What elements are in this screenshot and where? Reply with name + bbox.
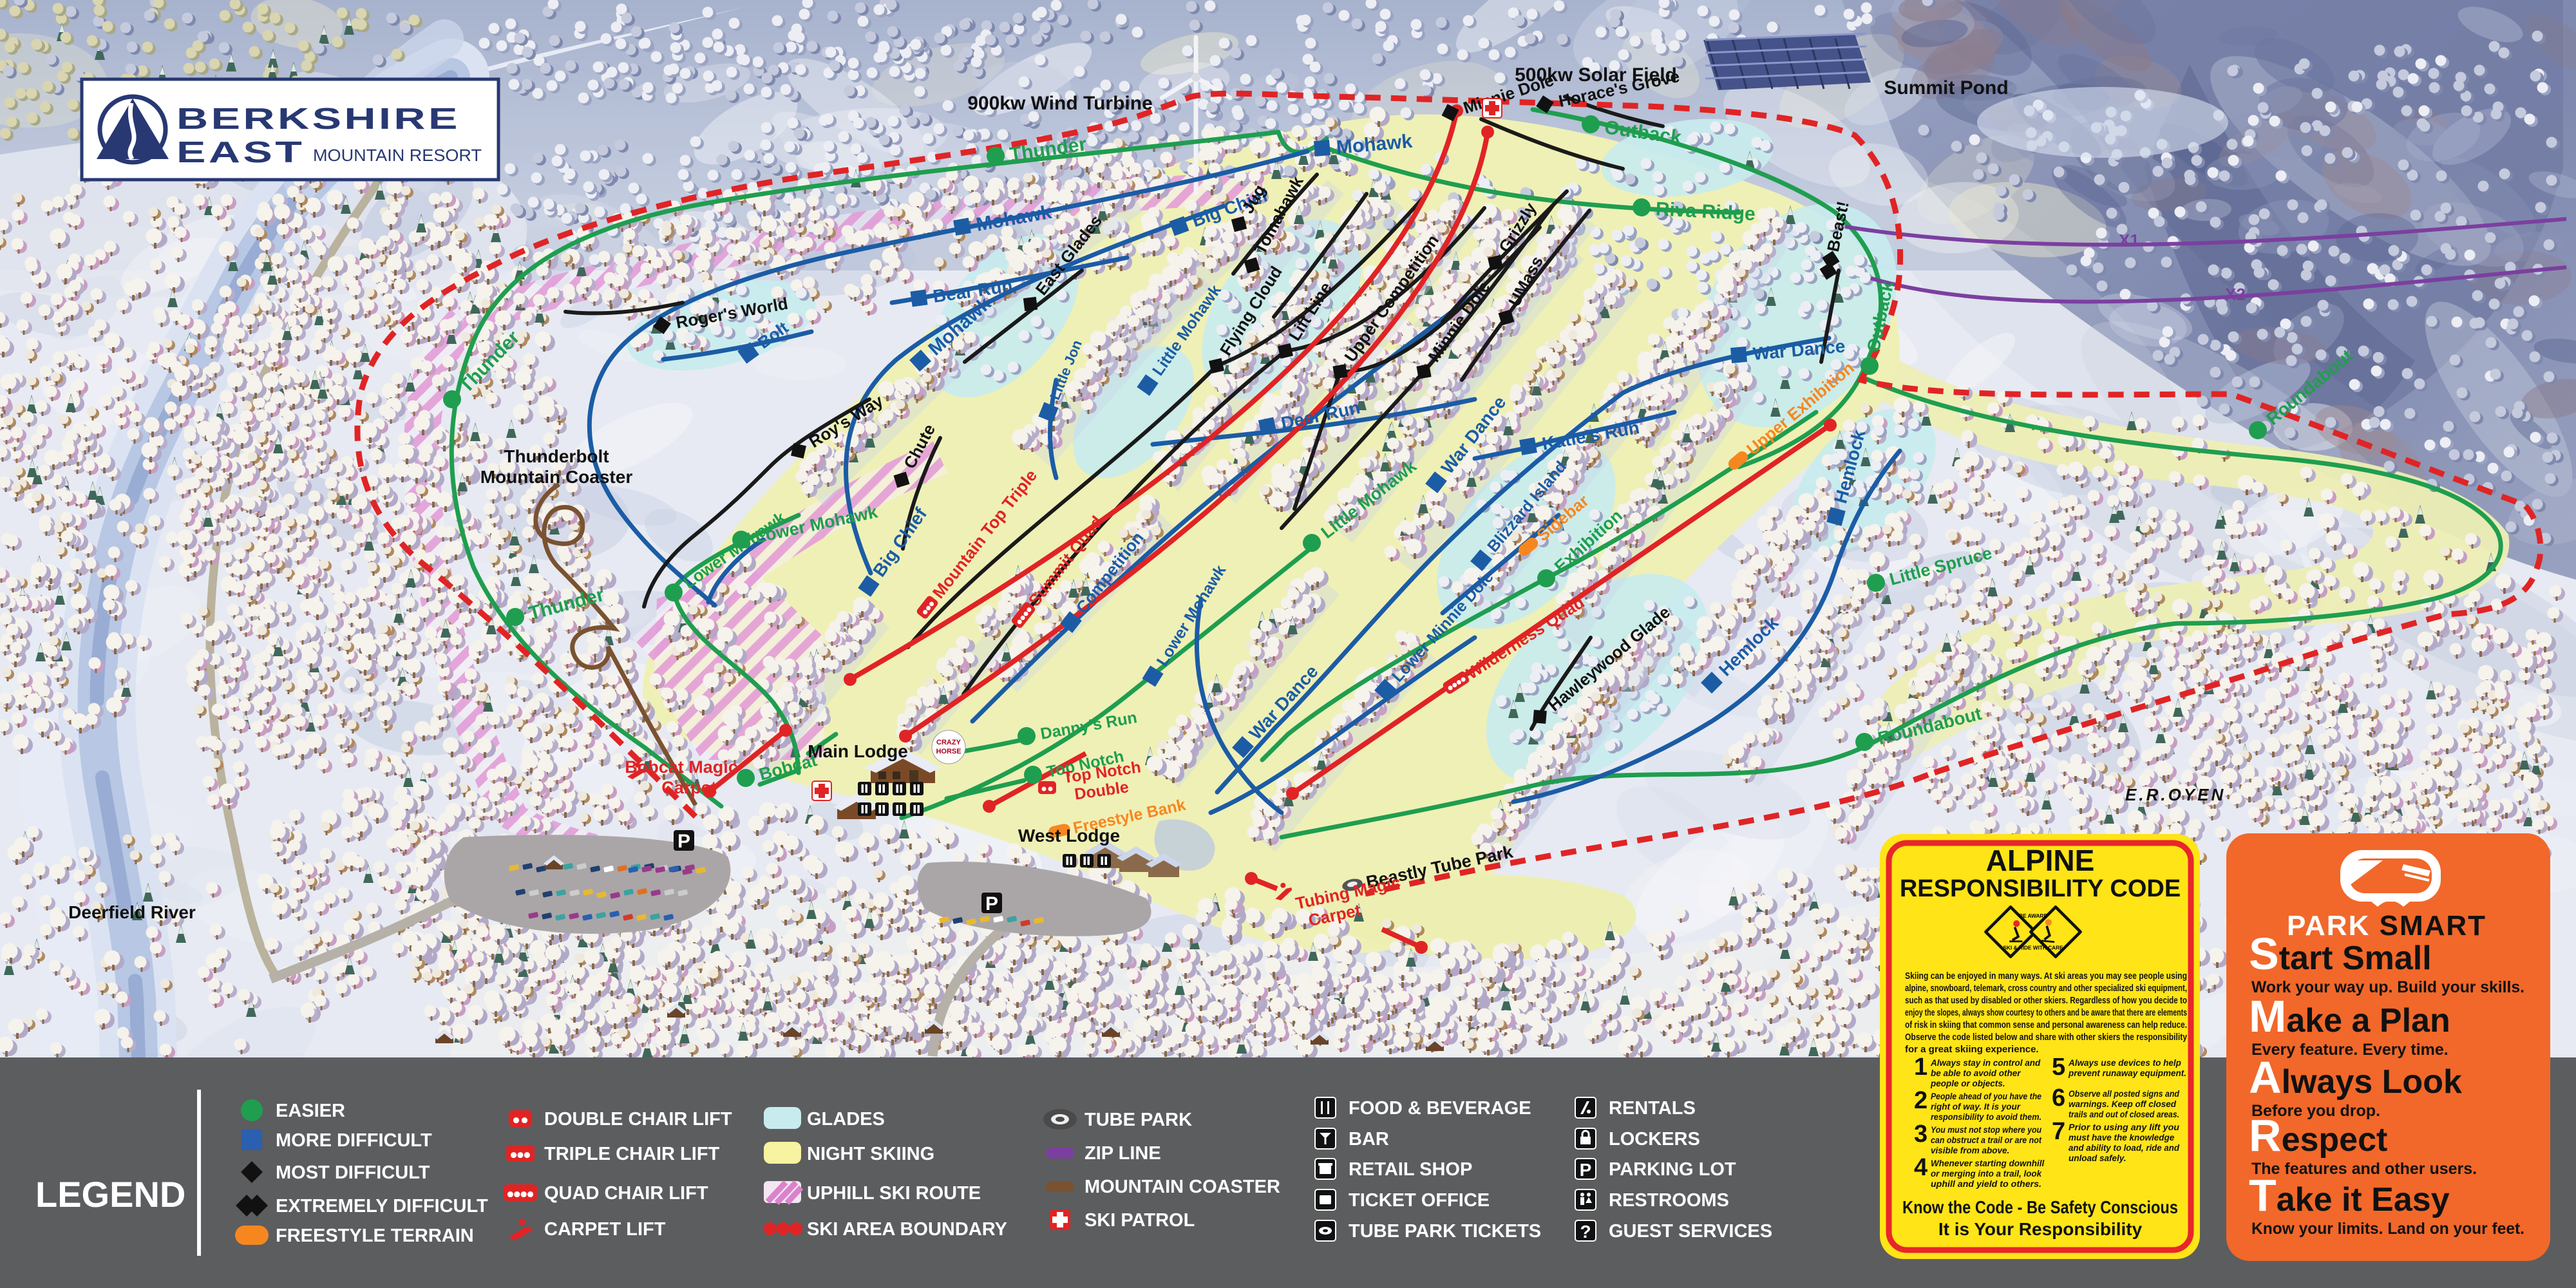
svg-text:ZIP LINE: ZIP LINE bbox=[1084, 1143, 1161, 1164]
svg-text:People ahead of you have the: People ahead of you have the bbox=[1931, 1092, 2041, 1101]
svg-text:Deerfield River: Deerfield River bbox=[68, 902, 196, 922]
svg-text:P: P bbox=[677, 831, 690, 852]
svg-text:such as that used by disabled: such as that used by disabled or other s… bbox=[1905, 995, 2187, 1006]
svg-text:enjoy the slopes, always show: enjoy the slopes, always show courtesy t… bbox=[1905, 1007, 2187, 1018]
svg-text:SKI PATROL: SKI PATROL bbox=[1084, 1210, 1195, 1231]
svg-text:RETAIL SHOP: RETAIL SHOP bbox=[1349, 1159, 1472, 1180]
svg-text:RESTROOMS: RESTROOMS bbox=[1609, 1190, 1729, 1211]
svg-text:Work your way up. Build your s: Work your way up. Build your skills. bbox=[2251, 978, 2524, 996]
svg-text:CRAZY: CRAZY bbox=[936, 739, 961, 746]
svg-text:Main Lodge: Main Lodge bbox=[808, 741, 908, 761]
svg-text:2: 2 bbox=[1914, 1087, 1927, 1114]
svg-text:FREESTYLE TERRAIN: FREESTYLE TERRAIN bbox=[276, 1226, 474, 1246]
svg-text:900kw Wind Turbine: 900kw Wind Turbine bbox=[967, 93, 1153, 114]
svg-text:Observe all posted signs and: Observe all posted signs and bbox=[2069, 1089, 2180, 1099]
svg-text:right of way. It is your: right of way. It is your bbox=[1931, 1102, 2021, 1112]
svg-text:SKI AREA BOUNDARY: SKI AREA BOUNDARY bbox=[807, 1219, 1007, 1240]
svg-text:500kw Solar Field: 500kw Solar Field bbox=[1515, 64, 1677, 86]
svg-text:GUEST SERVICES: GUEST SERVICES bbox=[1609, 1221, 1772, 1242]
svg-text:Carpet: Carpet bbox=[661, 778, 717, 797]
svg-text:trails and out of closed areas: trails and out of closed areas. bbox=[2069, 1110, 2179, 1119]
svg-text:PARKING LOT: PARKING LOT bbox=[1609, 1159, 1736, 1180]
svg-text:PARK SMART: PARK SMART bbox=[2287, 910, 2486, 942]
svg-text:can obstruct a trail or are no: can obstruct a trail or are not bbox=[1931, 1135, 2041, 1145]
svg-text:Summit Pond: Summit Pond bbox=[1884, 77, 2008, 99]
svg-text:unload safely.: unload safely. bbox=[2069, 1153, 2126, 1163]
svg-text:EXTREMELY DIFFICULT: EXTREMELY DIFFICULT bbox=[276, 1196, 488, 1217]
svg-text:TRIPLE CHAIR LIFT: TRIPLE CHAIR LIFT bbox=[544, 1144, 720, 1164]
svg-text:FOOD & BEVERAGE: FOOD & BEVERAGE bbox=[1349, 1098, 1531, 1119]
svg-text:BERKSHIRE: BERKSHIRE bbox=[176, 102, 460, 135]
svg-text:MORE DIFFICULT: MORE DIFFICULT bbox=[276, 1130, 432, 1151]
svg-text:RESPONSIBILITY CODE: RESPONSIBILITY CODE bbox=[1900, 875, 2181, 902]
svg-text:MOST DIFFICULT: MOST DIFFICULT bbox=[276, 1162, 430, 1183]
svg-text:ALPINE: ALPINE bbox=[1986, 844, 2095, 877]
svg-text:RENTALS: RENTALS bbox=[1609, 1098, 1696, 1119]
svg-text:uphill and yield to others.: uphill and yield to others. bbox=[1931, 1179, 2041, 1189]
svg-text:DOUBLE CHAIR LIFT: DOUBLE CHAIR LIFT bbox=[544, 1109, 732, 1130]
svg-text:You must not stop where you: You must not stop where you bbox=[1931, 1125, 2042, 1135]
svg-text:or merging into a trail, look: or merging into a trail, look bbox=[1931, 1169, 2042, 1179]
svg-text:people or objects.: people or objects. bbox=[1930, 1079, 2005, 1088]
svg-text:NIGHT SKIING: NIGHT SKIING bbox=[807, 1144, 934, 1164]
svg-text:Always stay in control and: Always stay in control and bbox=[1930, 1058, 2041, 1068]
svg-text:5: 5 bbox=[2052, 1054, 2065, 1081]
svg-text:E.R.OYEN: E.R.OYEN bbox=[2125, 785, 2226, 804]
svg-text:EAST: EAST bbox=[176, 136, 305, 169]
svg-text:Bobcat Magic: Bobcat Magic bbox=[625, 757, 738, 777]
svg-text:be able to avoid other: be able to avoid other bbox=[1931, 1068, 2021, 1078]
svg-text:TUBE PARK TICKETS: TUBE PARK TICKETS bbox=[1349, 1221, 1541, 1242]
svg-text:Prior to using any lift you: Prior to using any lift you bbox=[2069, 1122, 2180, 1132]
svg-text:6: 6 bbox=[2052, 1084, 2065, 1112]
svg-text:Know your limits. Land on your: Know your limits. Land on your feet. bbox=[2251, 1220, 2524, 1238]
svg-text:1: 1 bbox=[1914, 1054, 1927, 1081]
svg-text:It is Your Responsibility: It is Your Responsibility bbox=[1938, 1219, 2143, 1239]
svg-text:BE AWARE: BE AWARE bbox=[2019, 913, 2047, 919]
svg-text:GLADES: GLADES bbox=[807, 1109, 885, 1130]
svg-text:Observe the code listed below: Observe the code listed below and share … bbox=[1905, 1032, 2188, 1043]
svg-text:UPHILL SKI ROUTE: UPHILL SKI ROUTE bbox=[807, 1183, 981, 1204]
svg-text:P: P bbox=[1580, 1160, 1592, 1180]
svg-text:warnings. Keep off closed: warnings. Keep off closed bbox=[2069, 1099, 2177, 1109]
svg-text:TICKET OFFICE: TICKET OFFICE bbox=[1349, 1190, 1490, 1211]
svg-text:must have the knowledge: must have the knowledge bbox=[2069, 1133, 2175, 1142]
svg-text:?: ? bbox=[1580, 1222, 1591, 1242]
svg-text:Mountain Coaster: Mountain Coaster bbox=[480, 467, 633, 487]
svg-text:Whenever starting downhill: Whenever starting downhill bbox=[1931, 1159, 2045, 1168]
svg-text:West Lodge: West Lodge bbox=[1018, 826, 1120, 846]
svg-text:alpine, snowboard, telemark, c: alpine, snowboard, telemark, cross count… bbox=[1905, 983, 2187, 994]
svg-text:and ability to load, ride and: and ability to load, ride and bbox=[2069, 1143, 2180, 1153]
svg-text:prevent runaway equipment.: prevent runaway equipment. bbox=[2068, 1068, 2186, 1078]
svg-text:P: P bbox=[985, 893, 998, 914]
svg-text:CARPET LIFT: CARPET LIFT bbox=[544, 1219, 666, 1240]
svg-text:of risk in skiing that common: of risk in skiing that common sense and … bbox=[1905, 1019, 2187, 1030]
svg-text:X1: X1 bbox=[2119, 231, 2139, 250]
svg-text:X2: X2 bbox=[2225, 285, 2246, 304]
svg-text:TUBE PARK: TUBE PARK bbox=[1084, 1110, 1192, 1130]
svg-text:MOUNTAIN RESORT: MOUNTAIN RESORT bbox=[313, 146, 482, 165]
svg-text:QUAD CHAIR LIFT: QUAD CHAIR LIFT bbox=[544, 1183, 708, 1204]
svg-text:LEGEND: LEGEND bbox=[35, 1174, 185, 1215]
svg-text:visible from above.: visible from above. bbox=[1931, 1146, 2009, 1155]
svg-text:EASIER: EASIER bbox=[276, 1101, 345, 1121]
svg-text:Thunderbolt: Thunderbolt bbox=[504, 446, 609, 466]
svg-text:HORSE: HORSE bbox=[936, 748, 961, 755]
svg-text:Know the Code - Be Safety Cons: Know the Code - Be Safety Conscious bbox=[1902, 1197, 2178, 1217]
svg-text:responsibility to avoid them.: responsibility to avoid them. bbox=[1931, 1112, 2041, 1122]
svg-text:MOUNTAIN COASTER: MOUNTAIN COASTER bbox=[1084, 1177, 1280, 1197]
svg-text:Skiing can be enjoyed in many: Skiing can be enjoyed in many ways. At s… bbox=[1905, 971, 2187, 981]
svg-text:BAR: BAR bbox=[1349, 1129, 1389, 1150]
svg-text:3: 3 bbox=[1914, 1121, 1927, 1148]
svg-text:SKI & RIDE WITH CARE: SKI & RIDE WITH CARE bbox=[2003, 945, 2063, 951]
svg-text:LOCKERS: LOCKERS bbox=[1609, 1129, 1700, 1150]
svg-text:7: 7 bbox=[2052, 1118, 2065, 1145]
svg-text:The features and other users.: The features and other users. bbox=[2251, 1160, 2477, 1178]
svg-text:Always use devices to help: Always use devices to help bbox=[2068, 1058, 2181, 1068]
svg-text:4: 4 bbox=[1914, 1154, 1927, 1181]
